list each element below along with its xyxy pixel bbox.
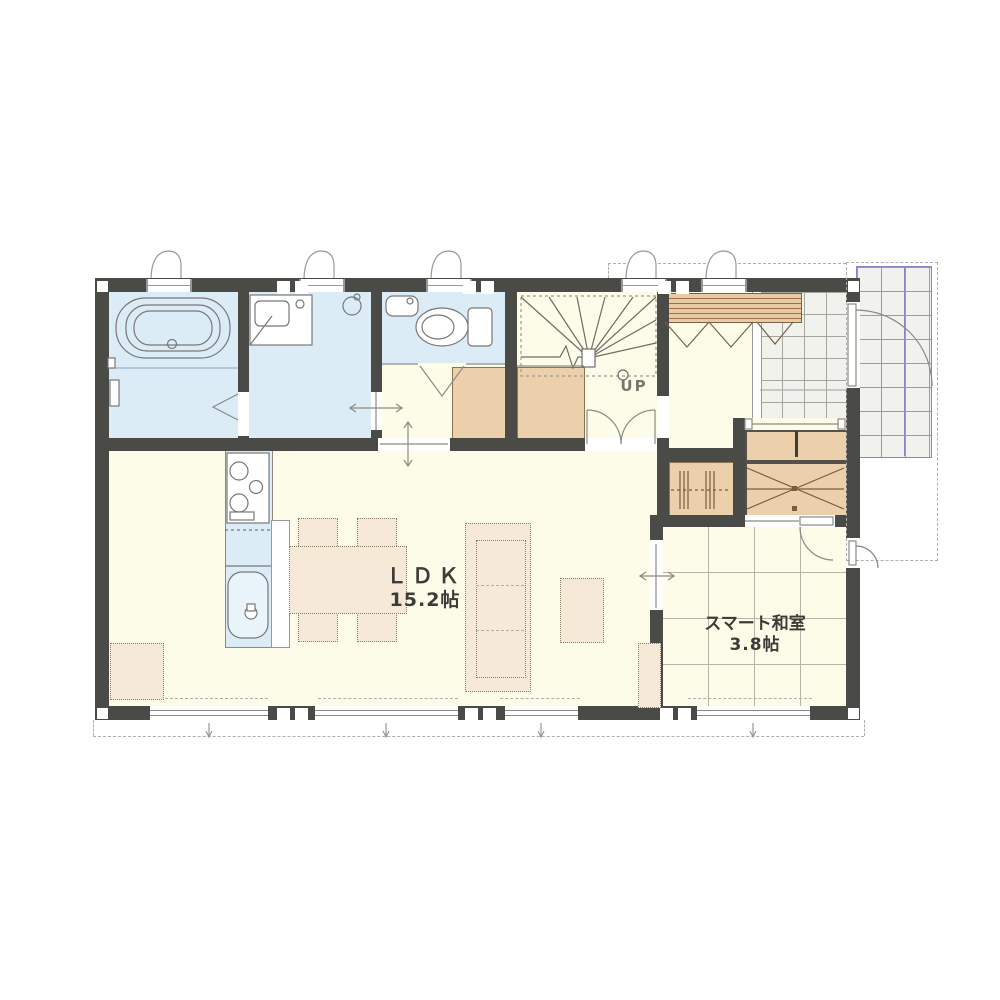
- ldk-room-area: 15.2帖: [345, 589, 505, 613]
- awning-window-leaves: [151, 251, 736, 278]
- washitsu-room-name: スマート和室: [675, 614, 835, 635]
- washitsu-label: スマート和室 3.8帖: [675, 614, 835, 657]
- entrance-door: [848, 304, 932, 386]
- washitsu-room-area: 3.8帖: [675, 635, 835, 656]
- window-swing-arrows: [206, 723, 756, 737]
- shower-mixer: [108, 358, 119, 406]
- kitchen-sink: [228, 572, 268, 638]
- stairs-up-label: UP: [612, 377, 656, 396]
- bathtub: [109, 298, 238, 368]
- storage-hanger-marks: [671, 471, 731, 509]
- ldk-washitsu-sliding-door: [640, 544, 674, 608]
- ldk-label: ＬＤＫ 15.2帖: [345, 563, 505, 613]
- toilet: [386, 296, 492, 346]
- washitsu-exterior-door: [849, 541, 878, 568]
- washroom-sliding-door: [350, 392, 402, 430]
- toilet-folding-door: [382, 364, 505, 396]
- stairs: [521, 296, 656, 380]
- bathroom-folding-door: [213, 394, 238, 420]
- shoe-cabinet-folding-doors: [665, 322, 793, 347]
- stairs-double-door: [587, 410, 655, 444]
- genkan-sliding-door: [745, 390, 846, 429]
- vanity-unit: [250, 295, 312, 345]
- entrance-closet-marks: [747, 468, 844, 511]
- floor-plan: ＬＤＫ 15.2帖 スマート和室 3.8帖 UP: [0, 0, 1000, 1000]
- laundry-faucet: [343, 294, 361, 315]
- stove: [225, 453, 271, 566]
- ldk-room-name: ＬＤＫ: [345, 563, 505, 589]
- washitsu-entry-door: [800, 517, 833, 560]
- fixtures-overlay: [0, 0, 1000, 1000]
- hall-ldk-sliding-door: [380, 422, 448, 466]
